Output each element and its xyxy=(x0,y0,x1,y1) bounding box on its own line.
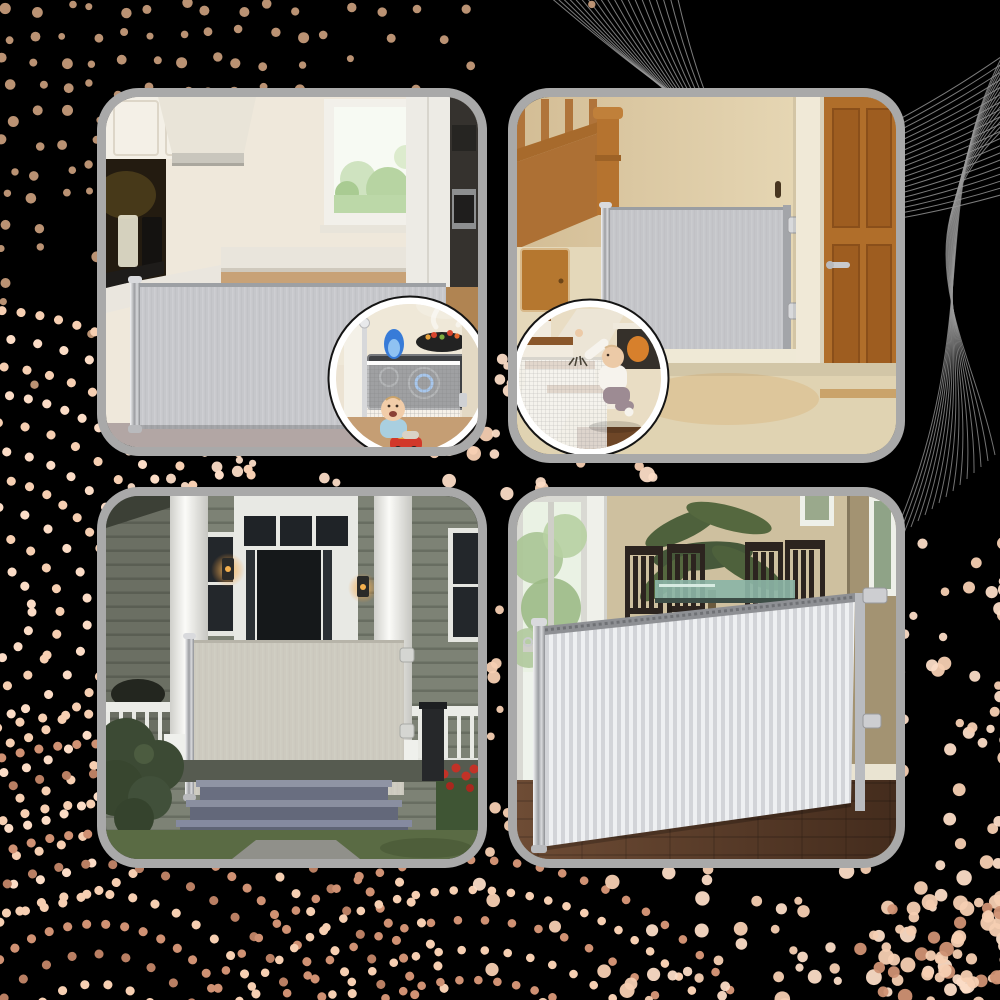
porch-railing-right xyxy=(412,706,478,766)
wooden-door xyxy=(824,97,896,397)
picture-frame-small xyxy=(800,496,834,526)
coffee-machine xyxy=(142,217,162,267)
right-window xyxy=(448,528,478,642)
newel-post xyxy=(597,113,619,215)
photo-porch-gate xyxy=(97,487,487,868)
gate-latch xyxy=(459,393,467,407)
mount-bracket-mid xyxy=(863,714,881,728)
wall-latch-slot xyxy=(775,181,781,198)
gate-pole xyxy=(128,276,142,433)
inset-stairs-closeup xyxy=(517,300,669,454)
glass-bottle xyxy=(118,215,138,267)
corner-post xyxy=(419,702,447,781)
baby-head xyxy=(602,346,624,368)
mount-bracket-top xyxy=(863,588,887,603)
microwave xyxy=(452,125,476,151)
range-hood xyxy=(158,97,256,166)
mount-bracket-top xyxy=(400,648,414,662)
photo-staircase-gate xyxy=(508,88,905,463)
extra-wide-gate xyxy=(541,593,855,851)
door-frame xyxy=(796,97,824,389)
mount-bracket-bottom xyxy=(400,724,414,738)
transom-window xyxy=(244,516,348,546)
photo-dining-room-gate xyxy=(508,487,905,868)
burner-flame xyxy=(384,329,404,359)
front-lawn xyxy=(106,830,478,859)
photo-kitchen-gate xyxy=(97,88,487,456)
baby-head xyxy=(381,397,405,421)
collage-canvas xyxy=(0,0,1000,1000)
fridge-and-appliances xyxy=(406,97,478,289)
